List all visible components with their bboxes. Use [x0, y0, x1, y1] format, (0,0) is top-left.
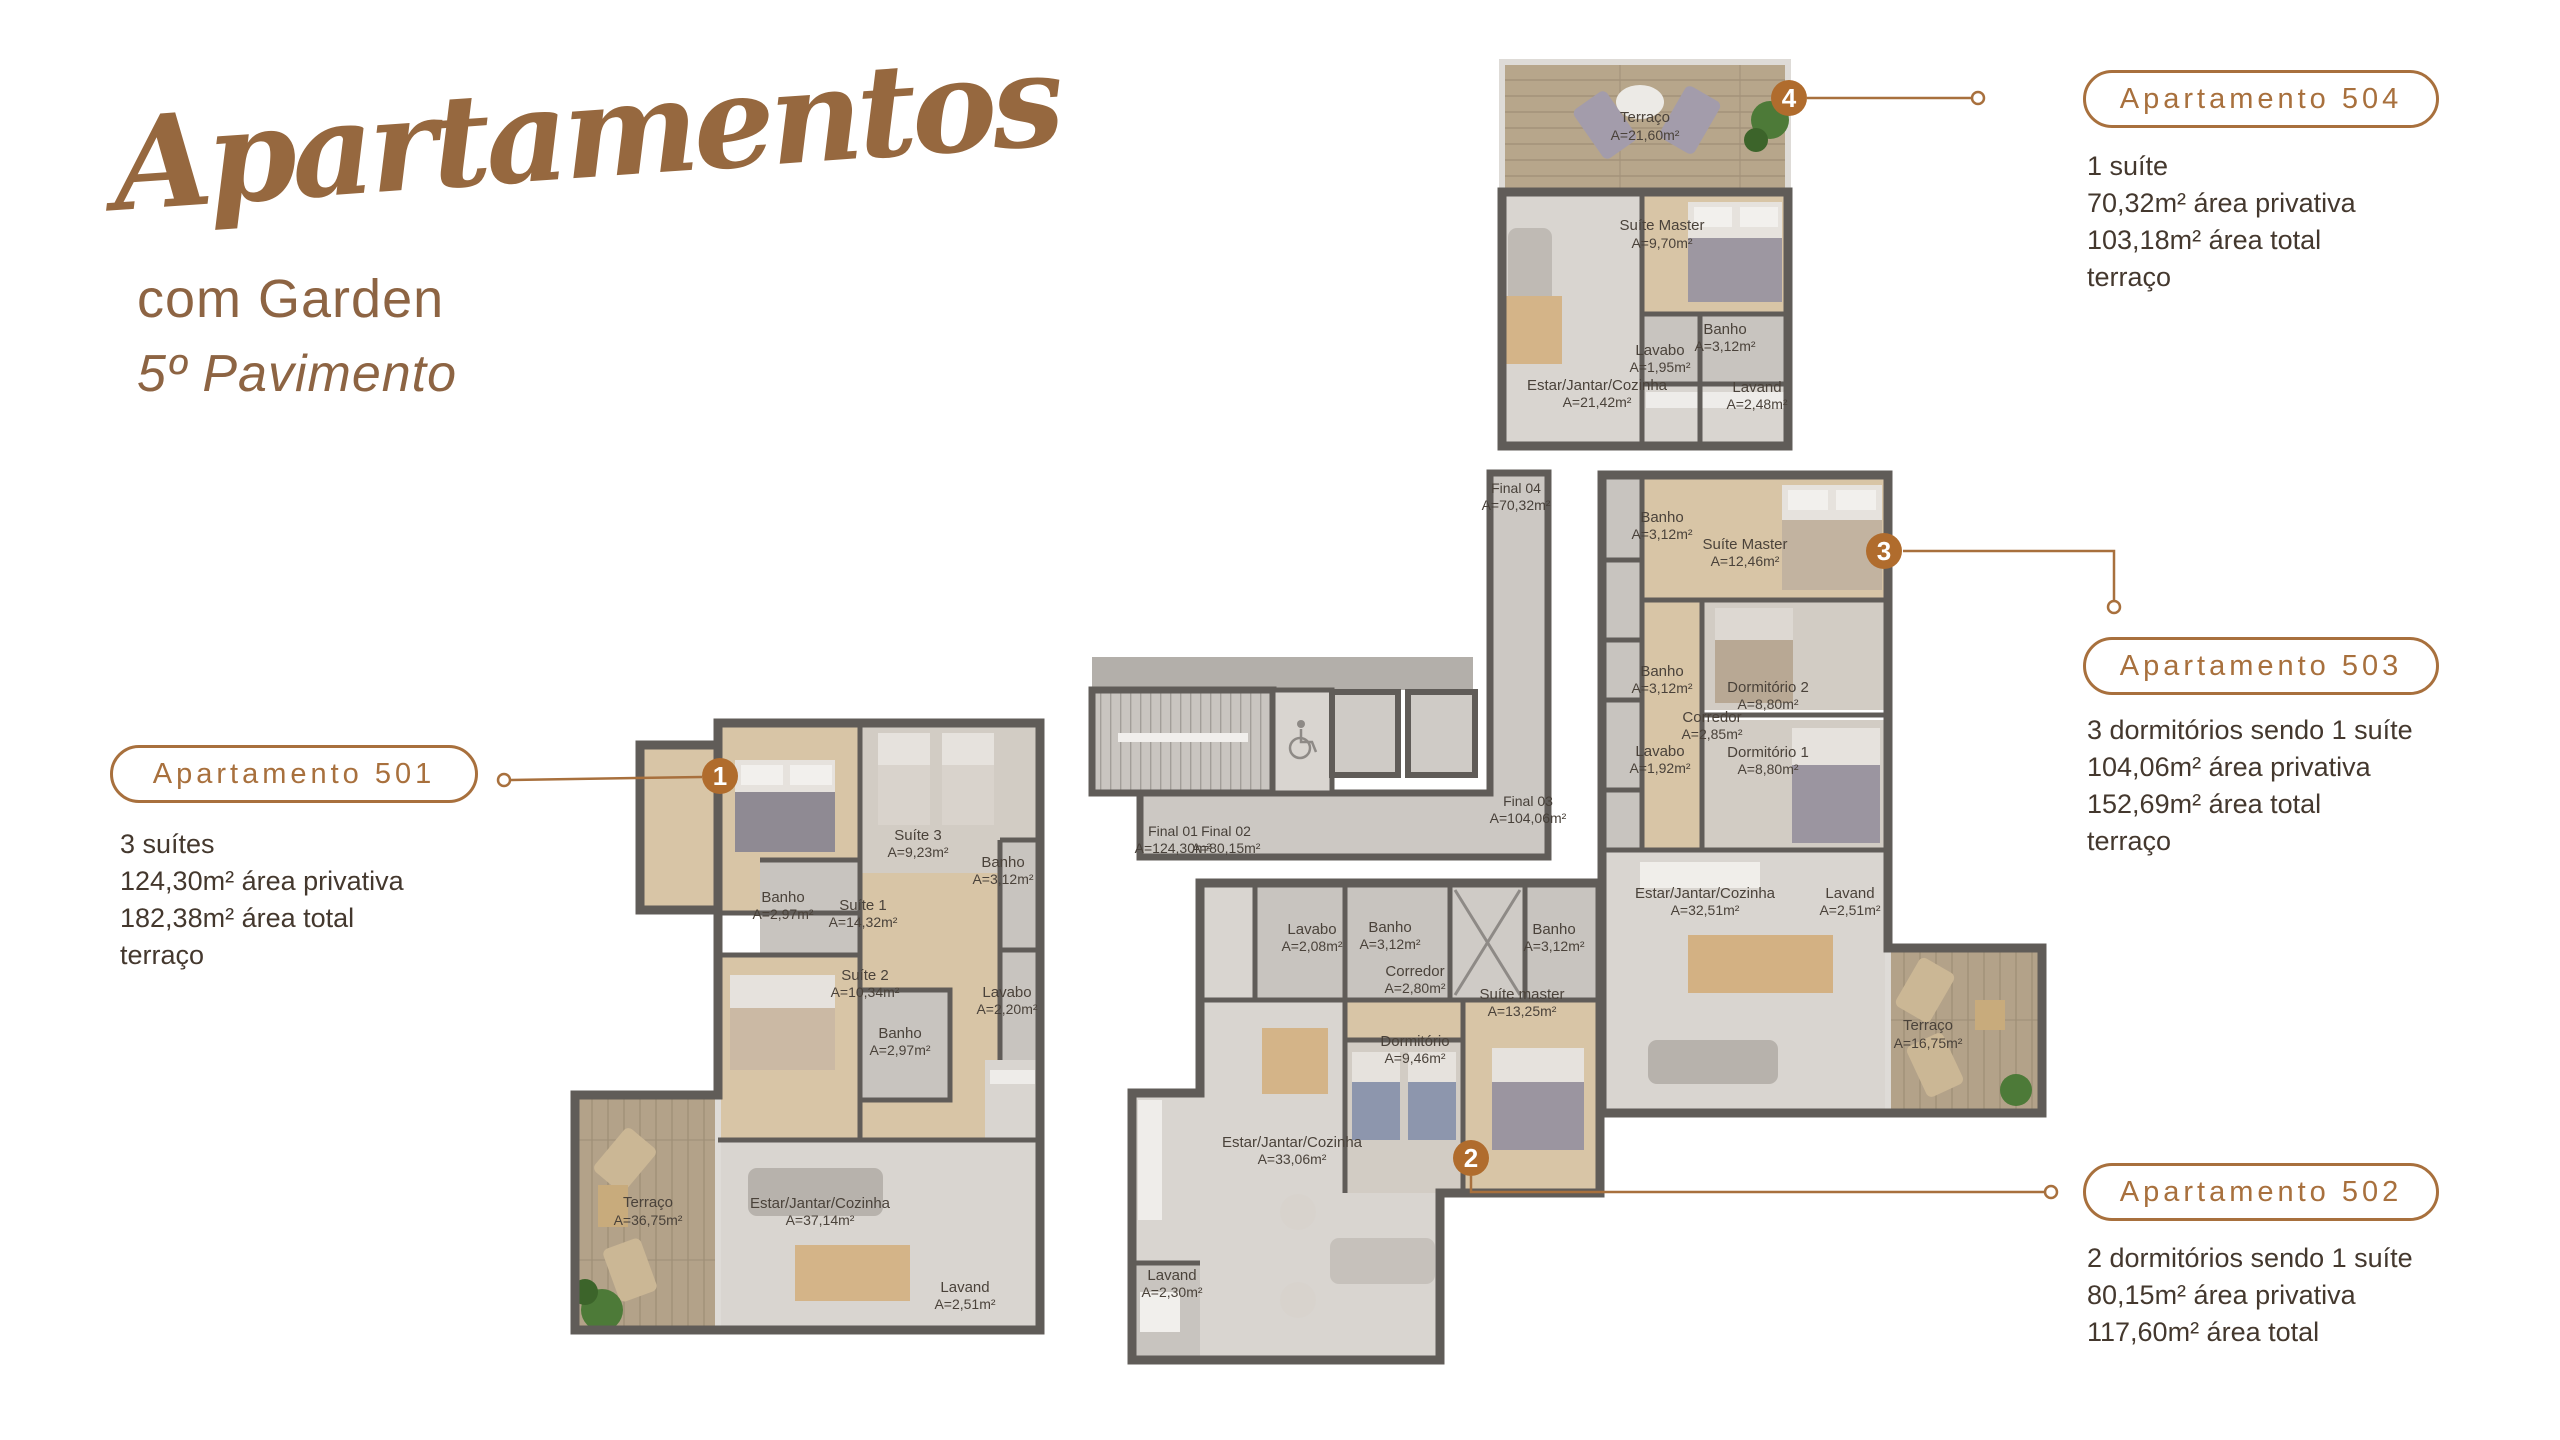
room-area: A=32,51m² [1671, 902, 1740, 918]
dining-table-icon [795, 1245, 910, 1301]
room-area: A=2,30m² [1141, 1284, 1202, 1300]
room-area: A=33,06m² [1258, 1151, 1327, 1167]
room-name: Banho [1640, 509, 1683, 526]
room-area: A=2,85m² [1681, 726, 1742, 742]
room-area: A=3,12m² [1523, 938, 1584, 954]
svg-text:4: 4 [1782, 83, 1797, 113]
room-area: A=1,95m² [1629, 359, 1690, 375]
armchair-icon [1280, 1282, 1316, 1318]
room-name: Lavabo [982, 984, 1031, 1001]
floorplan-apartment-502: Lavabo A=2,08m² Banho A=3,12m² Banho A=3… [1132, 883, 1600, 1360]
detail-line: 80,15m² área privativa [2087, 1277, 2413, 1314]
room-area: A=3,12m² [972, 871, 1033, 887]
details-apartment-501: 3 suítes 124,30m² área privativa 182,38m… [120, 826, 404, 974]
room-area: A=2,97m² [869, 1042, 930, 1058]
detail-line: 1 suíte [2087, 148, 2356, 185]
detail-line: 70,32m² área privativa [2087, 185, 2356, 222]
room-name: Lavabo [1635, 743, 1684, 760]
core-unit-label: Final 04 [1491, 480, 1541, 496]
pill-label: Apartamento 502 [2120, 1176, 2402, 1209]
detail-line: 104,06m² área privativa [2087, 749, 2413, 786]
bed-icon [1492, 1048, 1584, 1150]
room-area: A=10,34m² [831, 984, 900, 1000]
core-unit-label: Final 03 [1503, 793, 1553, 809]
detail-line: 3 suítes [120, 826, 404, 863]
room-entrada [1200, 883, 1255, 1000]
room-name: Terraço [1903, 1017, 1953, 1034]
room-area: A=3,12m² [1359, 936, 1420, 952]
room-area: A=37,14m² [786, 1212, 855, 1228]
room-area: A=9,46m² [1384, 1050, 1445, 1066]
bed-icon [730, 975, 835, 1070]
room-name: Estar/Jantar/Cozinha [1222, 1134, 1363, 1151]
room-name: Estar/Jantar/Cozinha [1635, 885, 1776, 902]
room-name: Corredor [1385, 963, 1444, 980]
room-name: Estar/Jantar/Cozinha [1527, 377, 1668, 394]
kitchen-counter [990, 1070, 1035, 1084]
room-name: Banho [1703, 321, 1746, 338]
room-area: A=2,80m² [1384, 980, 1445, 996]
room-name: Suíte Master [1619, 217, 1704, 234]
core-unit-area: A=80,15m² [1192, 840, 1261, 856]
plant-icon [2000, 1074, 2032, 1106]
detail-line: 117,60m² área total [2087, 1314, 2413, 1351]
room-area: A=2,08m² [1281, 938, 1342, 954]
marker-apartment-501[interactable]: 1 [702, 758, 738, 794]
leader-apartment-503 [1903, 551, 2120, 613]
core-unit-label: Final 01 [1148, 823, 1198, 839]
room-area: A=3,12m² [1694, 338, 1755, 354]
core-unit-label: Final 02 [1201, 823, 1251, 839]
kitchen-counter [1138, 1100, 1162, 1220]
room-name: Suíte master [1479, 986, 1564, 1003]
details-apartment-504: 1 suíte 70,32m² área privativa 103,18m² … [2087, 148, 2356, 296]
room-name: Suíte 1 [839, 897, 887, 914]
room-name: Dormitório 2 [1727, 679, 1809, 696]
room-area: A=2,51m² [934, 1296, 995, 1312]
room-name: Suíte Master [1702, 536, 1787, 553]
bed-icon [942, 733, 994, 825]
pill-apartment-504[interactable]: Apartamento 504 [2083, 70, 2439, 128]
core-unit-area: A=104,06m² [1490, 810, 1567, 826]
room-area: A=1,92m² [1629, 760, 1690, 776]
room-name: Banho [1532, 921, 1575, 938]
pill-label: Apartamento 501 [153, 758, 435, 791]
room-name: Banho [1368, 919, 1411, 936]
room-name: Banho [981, 854, 1024, 871]
sofa-icon [1648, 1040, 1778, 1084]
room-area: A=21,42m² [1563, 394, 1632, 410]
room-area: A=2,48m² [1726, 396, 1787, 412]
room-name: Dormitório [1380, 1033, 1449, 1050]
room-area: A=13,25m² [1488, 1003, 1557, 1019]
room-name: Lavand [1825, 885, 1874, 902]
room-name: Lavand [1147, 1267, 1196, 1284]
room-area: A=8,80m² [1737, 696, 1798, 712]
armchair-icon [1280, 1194, 1316, 1230]
detail-line: 182,38m² área total [120, 900, 404, 937]
pill-label: Apartamento 504 [2120, 83, 2402, 116]
svg-text:3: 3 [1877, 536, 1891, 566]
room-area: A=2,51m² [1819, 902, 1880, 918]
dining-table-icon [1688, 935, 1833, 993]
room-name: Estar/Jantar/Cozinha [750, 1195, 891, 1212]
room-name: Lavabo [1287, 921, 1336, 938]
bed-icon [1782, 485, 1882, 590]
room-name: Dormitório 1 [1727, 744, 1809, 761]
room-area: A=36,75m² [614, 1212, 683, 1228]
bed-icon [878, 733, 930, 825]
room-name: Lavabo [1635, 342, 1684, 359]
room-area: A=2,97m² [752, 906, 813, 922]
room-cozinha [985, 1060, 1040, 1330]
room-area: A=21,60m² [1611, 127, 1680, 143]
room-name: Terraço [1620, 109, 1670, 126]
detail-line: 124,30m² área privativa [120, 863, 404, 900]
pill-label: Apartamento 503 [2120, 650, 2402, 683]
room-name: Corredor [1682, 709, 1741, 726]
room-name: Suíte 3 [894, 827, 942, 844]
room-name: Lavand [1732, 379, 1781, 396]
sofa-icon [1330, 1238, 1435, 1284]
room-area: A=3,12m² [1631, 680, 1692, 696]
terrace-table-icon [1975, 1000, 2005, 1030]
pill-apartment-501[interactable]: Apartamento 501 [110, 745, 478, 803]
elevator-icon [1332, 692, 1398, 775]
central-core: Final 01 A=124,30m² Final 02 A=80,15m² F… [1092, 473, 1567, 857]
svg-text:2: 2 [1464, 1143, 1478, 1173]
room-name: Banho [761, 889, 804, 906]
floorplan-apartment-503: Banho A=3,12m² Suíte Master A=12,46m² Do… [1602, 475, 2042, 1113]
dining-table-icon [1262, 1028, 1328, 1094]
detail-line: 2 dormitórios sendo 1 suíte [2087, 1240, 2413, 1277]
room-area: A=16,75m² [1894, 1035, 1963, 1051]
pill-apartment-502[interactable]: Apartamento 502 [2083, 1163, 2439, 1221]
floorplan-apartment-504: Terraço A=21,60m² Suíte Master A=9,70m² … [1502, 62, 1789, 446]
room-area: A=2,20m² [976, 1001, 1037, 1017]
floorplan-apartment-501: Suíte 3 A=9,23m² Banho A=3,12m² Banho A=… [572, 723, 1040, 1331]
details-apartment-502: 2 dormitórios sendo 1 suíte 80,15m² área… [2087, 1240, 2413, 1351]
brochure-page: Apartamentos com Garden 5º Pavimento [0, 0, 2560, 1440]
room-area: A=14,32m² [829, 914, 898, 930]
room-name: Banho [878, 1025, 921, 1042]
detail-line: 103,18m² área total [2087, 222, 2356, 259]
room-area: A=9,23m² [887, 844, 948, 860]
svg-text:1: 1 [713, 761, 727, 791]
detail-line: terraço [2087, 823, 2413, 860]
core-unit-area: A=70,32m² [1482, 497, 1551, 513]
marker-apartment-503[interactable]: 3 [1866, 533, 1902, 569]
leader-apartment-504 [1807, 92, 1984, 104]
detail-line: 3 dormitórios sendo 1 suíte [2087, 712, 2413, 749]
detail-line: terraço [120, 937, 404, 974]
plant-icon [1744, 128, 1768, 152]
bed-icon [735, 760, 835, 852]
dining-table-icon [1504, 296, 1562, 364]
detail-line: 152,69m² área total [2087, 786, 2413, 823]
marker-apartment-504[interactable]: 4 [1771, 80, 1807, 116]
room-area: A=8,80m² [1737, 761, 1798, 777]
room-area: A=3,12m² [1631, 526, 1692, 542]
room-name: Banho [1640, 663, 1683, 680]
details-apartment-503: 3 dormitórios sendo 1 suíte 104,06m² áre… [2087, 712, 2413, 860]
elevator-icon [1408, 692, 1475, 775]
room-name: Terraço [623, 1194, 673, 1211]
room-area: A=9,70m² [1631, 235, 1692, 251]
stair-rail [1118, 733, 1248, 742]
room-area: A=12,46m² [1711, 553, 1780, 569]
marker-apartment-502[interactable]: 2 [1453, 1140, 1489, 1176]
room-name: Suíte 2 [841, 967, 889, 984]
detail-line: terraço [2087, 259, 2356, 296]
pill-apartment-503[interactable]: Apartamento 503 [2083, 637, 2439, 695]
room-name: Lavand [940, 1279, 989, 1296]
core-slab [1092, 657, 1473, 690]
